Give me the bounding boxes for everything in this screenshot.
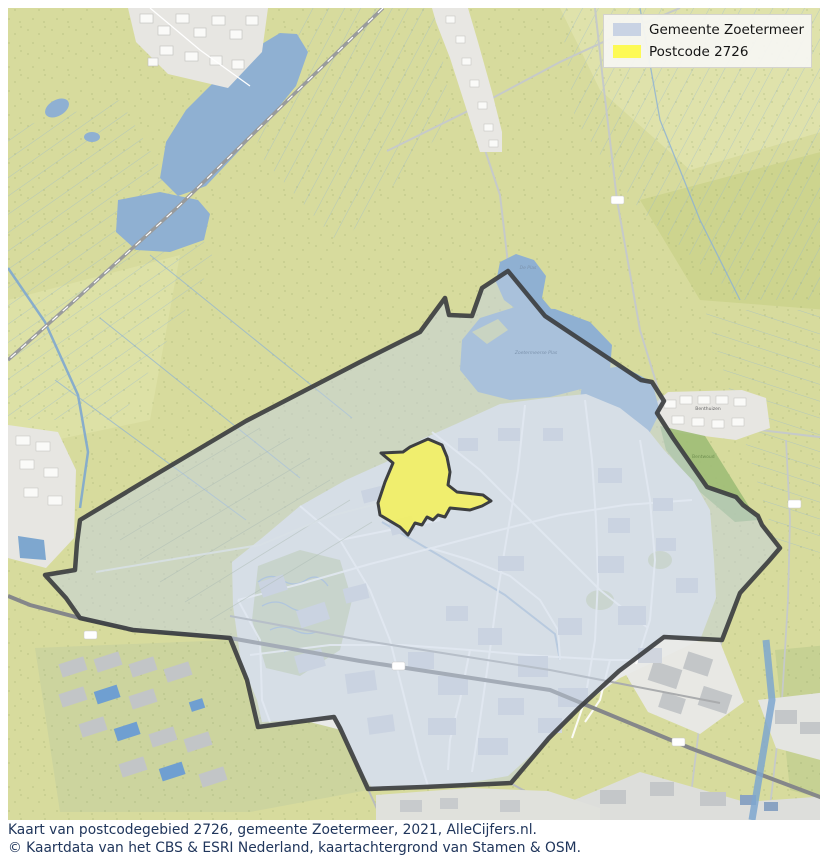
legend: Gemeente Zoetermeer Postcode 2726 (603, 14, 812, 68)
legend-label-municipality: Gemeente Zoetermeer (649, 22, 804, 38)
map-frame: Benthuizen (8, 8, 820, 820)
legend-swatch-postcode (613, 45, 641, 58)
page: Benthuizen (0, 0, 828, 861)
forest-label: Bentwoud (692, 454, 715, 460)
legend-label-postcode: Postcode 2726 (649, 44, 748, 60)
lake-small-label: De Plas (520, 265, 537, 271)
map-canvas: Benthuizen (8, 8, 820, 820)
caption-line2: © Kaartdata van het CBS & ESRI Nederland… (8, 840, 820, 858)
caption-line1: Kaart van postcodegebied 2726, gemeente … (8, 822, 820, 840)
legend-swatch-municipality (613, 23, 641, 36)
lake-large-label: Zoetermeerse Plas (514, 350, 558, 356)
legend-row-municipality: Gemeente Zoetermeer (613, 20, 802, 39)
legend-row-postcode: Postcode 2726 (613, 42, 802, 61)
village-label: Benthuizen (695, 406, 721, 412)
caption: Kaart van postcodegebied 2726, gemeente … (8, 822, 820, 857)
